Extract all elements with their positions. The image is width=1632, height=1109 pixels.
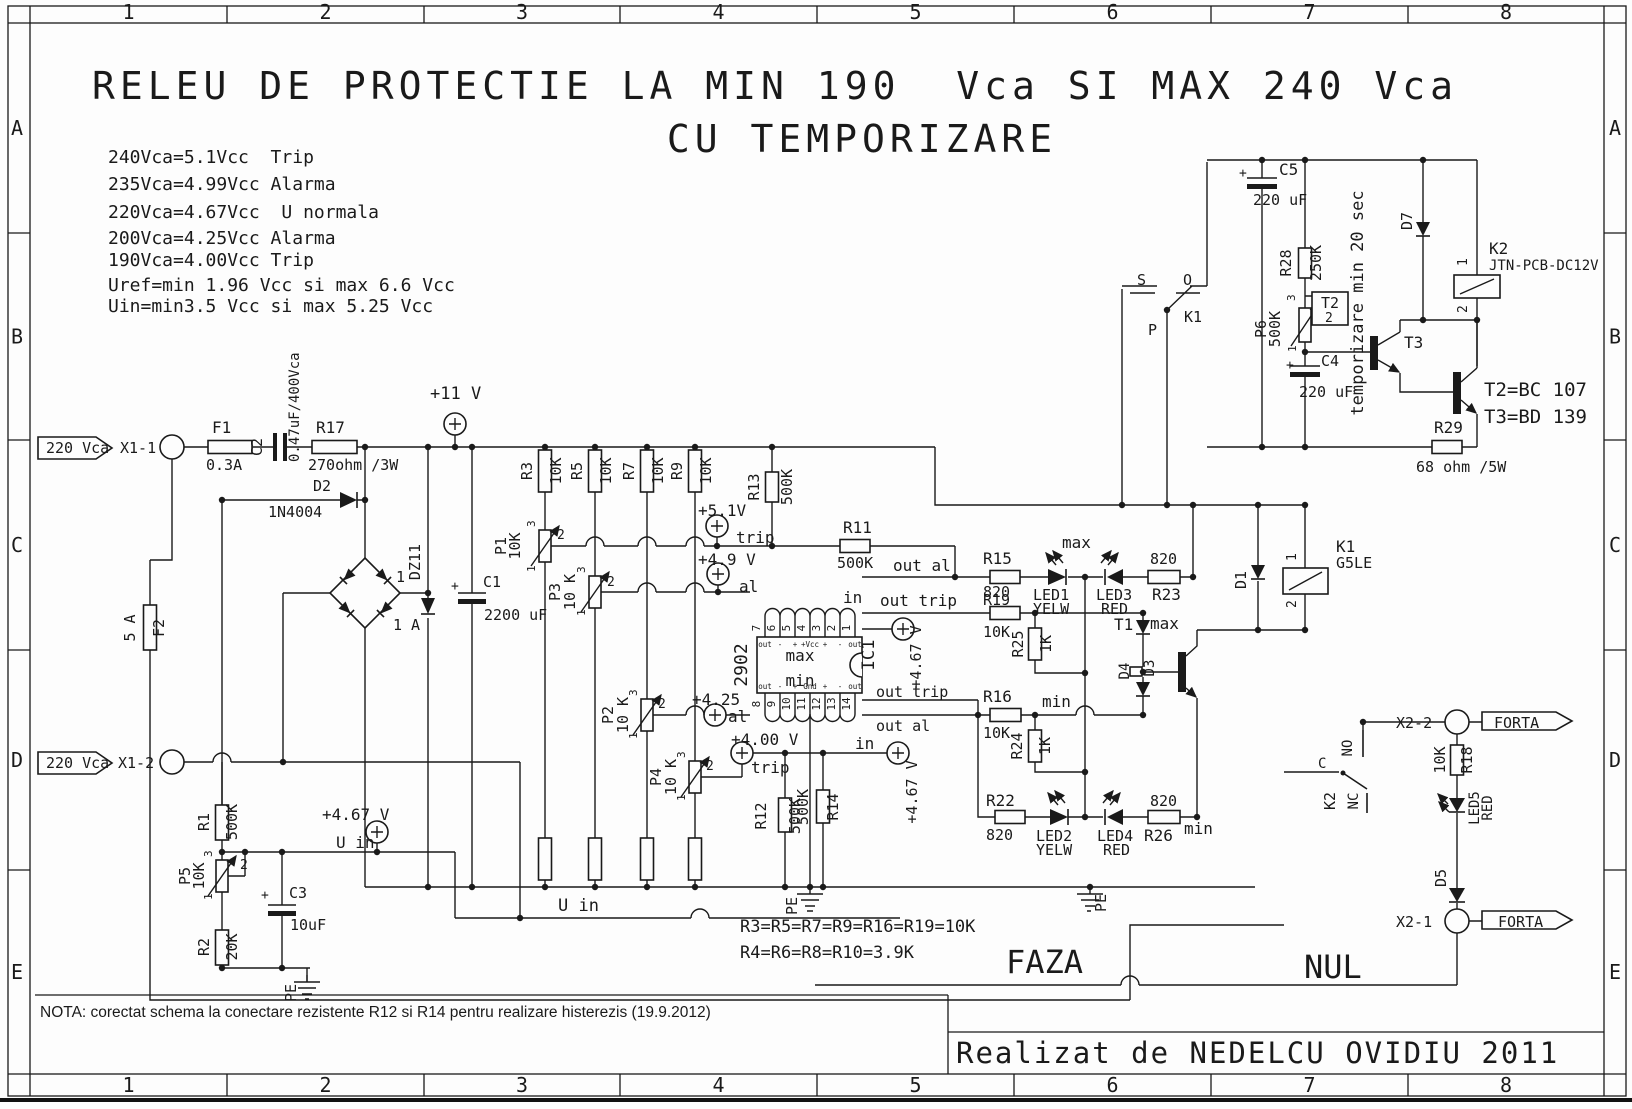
resistor-R16 [990,709,1021,722]
ic-pin-fn-top: + [823,640,828,649]
label-in-label-2: in [855,734,874,753]
label-r3-val: 10K [547,457,565,484]
schematic-sheet: 1122334455667788AABBCCDDEE [0,0,1632,1109]
label-p5-pin2: 2 [240,858,248,873]
label-title-line1: RELEU DE PROTECTIE LA MIN 190 Vca SI MAX… [92,64,1458,108]
label-p2-pin1: 1 [627,732,640,739]
ic-pin-fn-top: out [758,640,772,649]
relay-K1-coil [1283,568,1328,594]
ruler-col-bottom-1: 1 [122,1073,134,1097]
label-sw-k2-c: C [1318,756,1326,772]
label-f2-amp: 5 A [121,614,139,641]
label-t2-box-ref: T2 [1321,294,1339,312]
terminal-x1-2 [160,750,184,774]
label-c1-plus: + [451,579,459,594]
led-LED4 [1103,791,1123,825]
resistor-R15 [990,571,1020,584]
ruler-row-right-A: A [1609,116,1621,140]
label-p3-pin3: 3 [575,566,588,573]
ic-pin-fn-top: - [838,640,843,649]
label-f1-ref: F1 [212,418,231,437]
diode-D3 [1136,620,1150,634]
label-c3-val: 10uF [290,916,326,934]
label-r24-val: 1K [1036,737,1054,755]
label-note-5: 190Vca=4.00Vcc Trip [108,250,314,271]
label-sw-k1-o: O [1183,271,1192,289]
ruler-row-right-E: E [1609,960,1621,984]
ruler-col-bottom-3: 3 [516,1073,528,1097]
label-r13-ref: R13 [745,473,763,500]
diode-D1 [1251,565,1265,579]
ic-pin-fn-bottom: - [838,682,843,691]
label-nul-label: NUL [1304,948,1362,986]
ic-pin-num-top-4: 4 [795,624,808,631]
label-sw-k2-ref: K2 [1321,792,1339,810]
label-r1-val: 500K [223,804,241,840]
label-out-trip-1: out trip [880,591,957,610]
label-conn-x1-2: X1-2 [118,754,154,772]
capacitor-C2 [273,433,287,461]
label-conn-x2-2: X2-2 [1396,714,1432,732]
ic-pin-num-top-1: 1 [840,625,853,632]
label-r5-val: 10K [597,457,615,484]
label-p3-pin1: 1 [575,609,588,616]
label-note-6: Uref=min 1.96 Vcc si max 6.6 Vcc [108,275,455,296]
resistor-R11 [840,540,870,553]
label-k2-pin2: 2 [1456,305,1471,313]
label-t2-box-pin: 2 [1325,311,1333,326]
label-sw-k1-p: P [1148,321,1157,339]
schematic-drawing: 1122334455667788AABBCCDDEE [0,0,1632,1109]
label-min-label-1: min [1042,692,1071,711]
ic-pin-num-top-5: 5 [780,625,793,632]
label-c5-ref: C5 [1279,160,1298,179]
label-r24-ref: R24 [1008,732,1026,759]
bridge-rectifier [330,558,400,628]
label-out-al-1: out al [893,556,951,575]
capacitor-C4 [1290,366,1320,377]
label-tp-467uin-label: +4.67 V [322,805,390,824]
label-k1-val: G5LE [1336,554,1372,572]
label-dz11-ref: DZ11 [406,544,424,580]
ic-pin-fn-top: - [778,640,783,649]
label-d7-ref: D7 [1398,212,1416,230]
label-p1-pin3: 3 [525,520,538,527]
resistor-R4 [539,838,552,880]
ic-pin-num-top-2: 2 [825,625,838,632]
label-d2-ref: D2 [313,477,331,495]
ruler-col-top-5: 5 [909,0,921,24]
label-conn-x1-1: X1-1 [120,439,156,457]
ruler-col-bottom-5: 5 [909,1073,921,1097]
ruler-row-left-E: E [11,960,23,984]
label-bridge-pin1: 1 [396,568,405,586]
label-led5-col: RED [1480,795,1496,820]
label-p4-pin3: 3 [675,751,688,758]
label-c4-ref: C4 [1321,352,1339,370]
led-LED3 [1101,551,1123,585]
label-r1-ref: R1 [195,813,213,831]
label-r12-ref: R12 [752,802,770,829]
label-realizat: Realizat de NEDELCU OVIDIU 2011 [956,1036,1559,1070]
label-out-trip-2: out trip [876,683,948,701]
resistor-R29 [1432,441,1462,454]
label-d2-val: 1N4004 [268,503,322,521]
label-sw-k1-s: S [1137,271,1146,289]
ruler-row-right-D: D [1609,748,1621,772]
label-r15-ref: R15 [983,549,1012,568]
ic-pin-fn-bottom: + [823,682,828,691]
label-k2-val: JTN-PCB-DC12V [1489,258,1599,274]
led-LED1 [1046,551,1066,585]
led-LED2 [1048,791,1068,825]
label-p4-pin2: 2 [706,759,714,774]
label-r19-ref: R19 [983,591,1010,609]
label-ic-min: min [786,671,815,690]
ruler-col-top-6: 6 [1106,0,1118,24]
label-p2-pin3: 3 [627,689,640,696]
ic-pin-num-top-7: 7 [750,625,763,632]
ruler-col-top-8: 8 [1500,0,1512,24]
ruler-row-left-A: A [11,116,23,140]
transistor-T2-power [1453,320,1477,414]
ruler-col-bottom-8: 8 [1500,1073,1512,1097]
label-eq-t2: T2=BC 107 [1484,379,1587,401]
resistor-R17 [312,441,357,454]
label-r23-ref: R23 [1152,585,1181,604]
ic-pin-num-bottom-8: 8 [750,701,763,708]
label-k2-pin1: 1 [1456,258,1471,266]
label-p2-pin2: 2 [658,697,666,712]
resistor-R10 [689,838,702,880]
label-v11-label: +11 V [430,384,481,404]
label-r22-val: 820 [986,826,1013,844]
label-r11-val: 500K [837,554,873,572]
label-c5-plus: + [1239,166,1247,181]
ic-pin-fn-bottom: out [848,682,862,691]
label-nota-line: NOTA: corectat schema la conectare rezis… [40,1004,711,1021]
label-r19-val: 10K [983,623,1010,641]
label-max-label-2: max [1150,614,1179,633]
label-sw-k2-nc: NC [1346,793,1362,810]
label-eq-r39k: R4=R6=R8=R10=3.9K [740,943,915,963]
label-al-label-1: al [739,577,758,596]
label-trip-label-1: trip [736,528,775,547]
label-led4-col: RED [1103,841,1130,859]
terminal-x1-1 [160,435,184,459]
label-note-3: 220Vca=4.67Vcc U normala [108,202,379,223]
label-conn-x1-1-flag: 220 Vca [46,439,109,457]
testpoint-v11 [444,413,466,435]
label-r16-ref: R16 [983,687,1012,706]
label-forta-1: FORTA [1494,714,1539,732]
label-f1-val: 0.3A [206,456,242,474]
ruler-col-bottom-7: 7 [1303,1073,1315,1097]
ic-pin-fn-bottom: out [758,682,772,691]
transistor-T3 [1370,320,1400,372]
label-eq-r10k: R3=R5=R7=R9=R16=R19=10K [740,917,976,937]
label-r9-val: 10K [697,457,715,484]
label-r25-val: 1K [1037,635,1055,653]
label-r28-ref: R28 [1277,249,1295,276]
capacitor-C5 [1247,178,1277,189]
label-sw-k1-ref: K1 [1184,308,1202,326]
ruler-col-bottom-4: 4 [712,1073,724,1097]
ic-pin-num-bottom-11: 11 [795,697,808,710]
terminal-x2-1 [1445,909,1469,933]
label-r5-ref: R5 [568,462,586,480]
label-c3-plus: + [261,888,269,903]
label-faza-label: FAZA [1006,943,1083,981]
label-r18-ref: R18 [1458,746,1476,773]
label-r11-ref: R11 [843,518,872,537]
ruler-col-top-4: 4 [712,0,724,24]
resistor-R26 [1148,811,1180,824]
label-r17-ref: R17 [316,418,345,437]
ruler-col-top-1: 1 [122,0,134,24]
ic-pin-num-bottom-9: 9 [765,701,778,708]
terminal-x2-2 [1445,710,1469,734]
label-tp-51-label: +5.1V [698,501,747,520]
label-p6-pin1: 1 [1286,345,1299,352]
label-uin-bus-label: U in [558,896,599,916]
label-p1-val: 10K [506,532,524,559]
label-eq-t3: T3=BD 139 [1484,406,1587,428]
label-tp-467-r1: +4.67 V [907,625,925,688]
label-c4-plus: + [1286,358,1294,373]
ruler-col-bottom-6: 6 [1106,1073,1118,1097]
label-note-2: 235Vca=4.99Vcc Alarma [108,174,336,195]
label-c1-ref: C1 [483,573,501,591]
ruler-col-top-2: 2 [319,0,331,24]
label-r2-val: 20K [223,933,241,960]
ic-pin-num-bottom-12: 12 [810,697,823,710]
ic-pin-num-bottom-13: 13 [825,697,838,710]
ruler-row-right-C: C [1609,533,1621,557]
label-in-label-1: in [843,588,862,607]
ic-pin-fn-bottom: - [778,682,783,691]
label-r17-val: 270ohm /3W [308,456,399,474]
label-r18-val: 10K [1431,746,1449,773]
label-ic-part: 2902 [731,643,752,686]
label-r28-val: 250K [1307,245,1325,281]
label-t3-ref: T3 [1404,333,1423,352]
label-tp-400-label: +4.00 V [731,730,799,749]
label-min-label-2: min [1184,819,1213,838]
labels: RELEU DE PROTECTIE LA MIN 190 Vca SI MAX… [40,64,1599,1070]
diode-D2 [340,492,357,508]
label-p3-val: 10 K [561,574,579,610]
label-al-label-2: al [728,707,747,726]
fuse-F1 [208,441,252,454]
label-pe-1: PE [282,984,300,1002]
label-r26-val: 820 [1150,792,1177,810]
label-r2-ref: R2 [195,938,213,956]
resistor-R22 [995,811,1025,824]
label-k1-pin2: 2 [1285,600,1300,608]
label-k1-pin1: 1 [1285,553,1300,561]
label-d3-ref: D3 [1142,660,1158,677]
label-k2-ref: K2 [1489,239,1508,258]
label-f2-ref: F2 [150,619,168,637]
label-p6-val: 500K [1266,311,1284,347]
label-ic-ref: IC1 [859,640,879,671]
label-tp-49-label: +4.9 V [698,550,756,569]
label-title-line2: CU TEMPORIZARE [667,117,1057,161]
label-pe-3: PE [1092,894,1110,912]
label-note-7: Uin=min3.5 Vcc si max 5.25 Vcc [108,296,433,317]
label-r16-val: 10K [983,724,1010,742]
label-p5-pin3: 3 [202,850,215,857]
label-r22-ref: R22 [986,791,1015,810]
resistor-R23 [1148,571,1180,584]
ruler-row-left-C: C [11,533,23,557]
led-LED5 [1438,794,1465,812]
label-d1-ref: D1 [1232,571,1250,589]
label-c3-ref: C3 [289,884,307,902]
diode-DZ11 [421,598,435,614]
label-r9-ref: R9 [668,462,686,480]
label-p4-pin1: 1 [675,794,688,801]
ruler-row-left-B: B [11,325,23,349]
label-r13-val: 500K [778,469,796,505]
ruler-row-right-B: B [1609,325,1621,349]
label-r14-ref: R14 [824,793,842,820]
label-p4-val: 10 K [662,759,680,795]
label-p1-pin1: 1 [525,565,538,572]
label-sw-k2-no: NO [1340,740,1356,757]
label-p3-pin2: 2 [607,575,615,590]
label-conn-x1-2-flag: 220 Vca [46,754,109,772]
label-r7-ref: R7 [620,462,638,480]
ic-pin-num-bottom-14: 14 [840,697,853,711]
label-conn-x2-1: X2-1 [1396,913,1432,931]
resistor-R13 [766,472,779,502]
ruler-col-bottom-2: 2 [319,1073,331,1097]
label-c2-val: 0.47uF/400Vca [287,352,303,462]
label-r25-ref: R25 [1009,630,1027,657]
label-c2-ref: C2 [248,438,266,456]
ruler-col-top-7: 7 [1303,0,1315,24]
label-trip-label-2: trip [751,758,790,777]
capacitor-C3 [268,905,296,916]
label-c1-val: 2200 uF [484,606,547,624]
label-r23-val: 820 [1150,550,1177,568]
label-d5-ref: D5 [1432,869,1450,887]
label-r3-ref: R3 [518,462,536,480]
diode-D5 [1449,888,1465,902]
diode-D7 [1416,222,1430,246]
label-t1-ref: T1 [1114,615,1133,634]
transistor-T1 [1178,630,1197,697]
label-p6-pin3: 3 [1285,294,1298,301]
label-p5-pin1: 1 [202,893,215,900]
label-pe-2: PE [783,897,801,915]
ruler-row-left-D: D [11,748,23,772]
label-max-label-1: max [1062,533,1091,552]
label-d4-ref: D4 [1117,663,1133,680]
label-note-4: 200Vca=4.25Vcc Alarma [108,228,336,249]
label-r29-ref: R29 [1434,418,1463,437]
label-c4-val: 220 uF [1299,383,1353,401]
label-c5-val: 220 uF [1253,191,1307,209]
label-p2-val: 10 K [614,697,632,733]
label-p1-pin2: 2 [557,528,565,543]
label-tp-467uin-sub: U in [336,833,375,852]
label-p5-val: 10K [190,862,208,889]
ruler-col-top-3: 3 [516,0,528,24]
label-tp-467-r2: +4.67 V [903,760,921,823]
ic-pin-num-bottom-10: 10 [780,697,793,710]
label-bridge-val: 1 A [393,616,420,634]
label-r29-val: 68 ohm /5W [1416,458,1507,476]
label-tempo-label: temporizare min 20 sec [1348,190,1368,415]
label-led2-col: YELW [1036,841,1073,859]
relay-K2-coil [1454,275,1500,298]
resistor-R8 [641,838,654,880]
label-note-1: 240Vca=5.1Vcc Trip [108,147,314,168]
label-ic-max: max [786,646,815,665]
ic-pin-num-top-3: 3 [810,625,823,632]
label-r26-ref: R26 [1144,826,1173,845]
label-led1-col: YELW [1033,600,1070,618]
label-r7-val: 10K [649,457,667,484]
resistor-R6 [589,838,602,880]
label-out-al-2: out al [876,717,930,735]
capacitor-C1 [458,593,486,604]
label-forta-2: FORTA [1498,913,1543,931]
ic-pin-num-top-6: 6 [765,625,778,632]
